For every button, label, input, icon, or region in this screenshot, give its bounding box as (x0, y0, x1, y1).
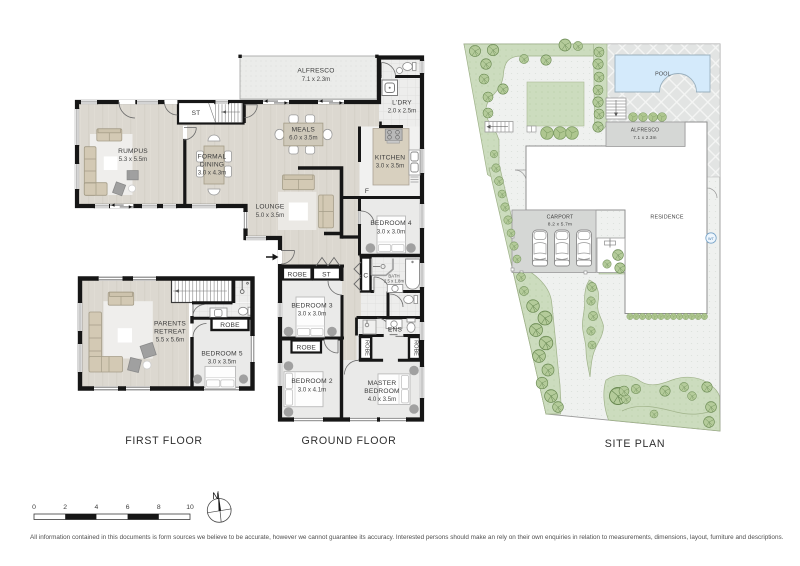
svg-text:3.0 x 4.1m: 3.0 x 4.1m (298, 387, 326, 394)
svg-text:BEDROOM: BEDROOM (364, 388, 399, 395)
svg-text:ALFRESCO: ALFRESCO (631, 128, 660, 134)
svg-text:ROBE: ROBE (297, 344, 317, 351)
svg-text:2: 2 (63, 504, 67, 511)
svg-text:WT: WT (708, 237, 715, 241)
svg-text:3.0 x 3.0m: 3.0 x 3.0m (377, 229, 405, 236)
svg-text:8.2 x 5.7m: 8.2 x 5.7m (548, 222, 572, 228)
svg-text:4: 4 (95, 504, 99, 511)
svg-text:RESIDENCE: RESIDENCE (650, 215, 683, 221)
svg-text:3.0 x 3.5m: 3.0 x 3.5m (376, 163, 404, 170)
svg-text:4.0 x 3.5m: 4.0 x 3.5m (368, 396, 396, 403)
svg-text:BEDROOM 2: BEDROOM 2 (291, 378, 333, 385)
svg-text:BEDROOM 4: BEDROOM 4 (370, 220, 412, 227)
svg-text:ALFRESCO: ALFRESCO (297, 68, 334, 75)
svg-text:KITCHEN: KITCHEN (375, 155, 405, 162)
svg-text:7.1 x 2.3m: 7.1 x 2.3m (633, 135, 656, 140)
svg-text:MASTER: MASTER (368, 380, 397, 387)
svg-text:10: 10 (186, 504, 194, 511)
svg-text:ROBE: ROBE (413, 340, 419, 356)
svg-text:6: 6 (126, 504, 130, 511)
svg-text:LOUNGE: LOUNGE (255, 204, 284, 211)
svg-text:L'DRY: L'DRY (392, 100, 412, 107)
svg-text:ST: ST (322, 272, 331, 279)
svg-text:ROBE: ROBE (220, 322, 240, 329)
svg-text:SITE PLAN: SITE PLAN (605, 438, 665, 450)
svg-text:5.0 x 3.5m: 5.0 x 3.5m (256, 212, 284, 219)
svg-text:POOL: POOL (655, 72, 671, 78)
svg-text:5.3 x 5.5m: 5.3 x 5.5m (119, 156, 147, 163)
svg-text:GROUND FLOOR: GROUND FLOOR (302, 435, 397, 447)
svg-text:PARENTS: PARENTS (154, 321, 186, 328)
svg-text:All information contained in t: All information contained in this docume… (30, 534, 784, 541)
svg-text:RUMPUS: RUMPUS (118, 148, 148, 155)
svg-text:FIRST FLOOR: FIRST FLOOR (125, 435, 203, 447)
svg-text:0: 0 (32, 504, 36, 511)
svg-text:CARPORT: CARPORT (547, 215, 574, 221)
svg-text:2.5 x 1.8m: 2.5 x 1.8m (384, 279, 404, 284)
svg-text:F: F (365, 188, 369, 195)
svg-text:8: 8 (157, 504, 161, 511)
svg-text:FORMAL: FORMAL (198, 154, 227, 161)
svg-text:C: C (363, 273, 368, 280)
svg-text:7.1 x 2.3m: 7.1 x 2.3m (302, 76, 330, 83)
svg-text:6.0 x 3.5m: 6.0 x 3.5m (289, 135, 317, 142)
svg-text:5.5 x 5.6m: 5.5 x 5.6m (156, 337, 184, 344)
svg-text:3.0 x 3.5m: 3.0 x 3.5m (208, 359, 236, 366)
svg-text:N: N (212, 491, 219, 501)
svg-text:RETREAT: RETREAT (154, 329, 186, 336)
svg-text:3.0 x 3.0m: 3.0 x 3.0m (298, 311, 326, 318)
svg-text:BEDROOM 5: BEDROOM 5 (201, 351, 243, 358)
svg-text:MEALS: MEALS (292, 127, 316, 134)
svg-text:2.0 x 2.5m: 2.0 x 2.5m (388, 108, 416, 115)
svg-text:DINING: DINING (200, 162, 224, 169)
svg-text:3.0 x 4.3m: 3.0 x 4.3m (198, 170, 226, 177)
svg-text:ST: ST (192, 110, 201, 117)
svg-text:ROBE: ROBE (364, 340, 370, 356)
svg-text:ENS: ENS (388, 327, 403, 334)
svg-text:BEDROOM 3: BEDROOM 3 (291, 303, 333, 310)
svg-text:ROBE: ROBE (288, 272, 308, 279)
